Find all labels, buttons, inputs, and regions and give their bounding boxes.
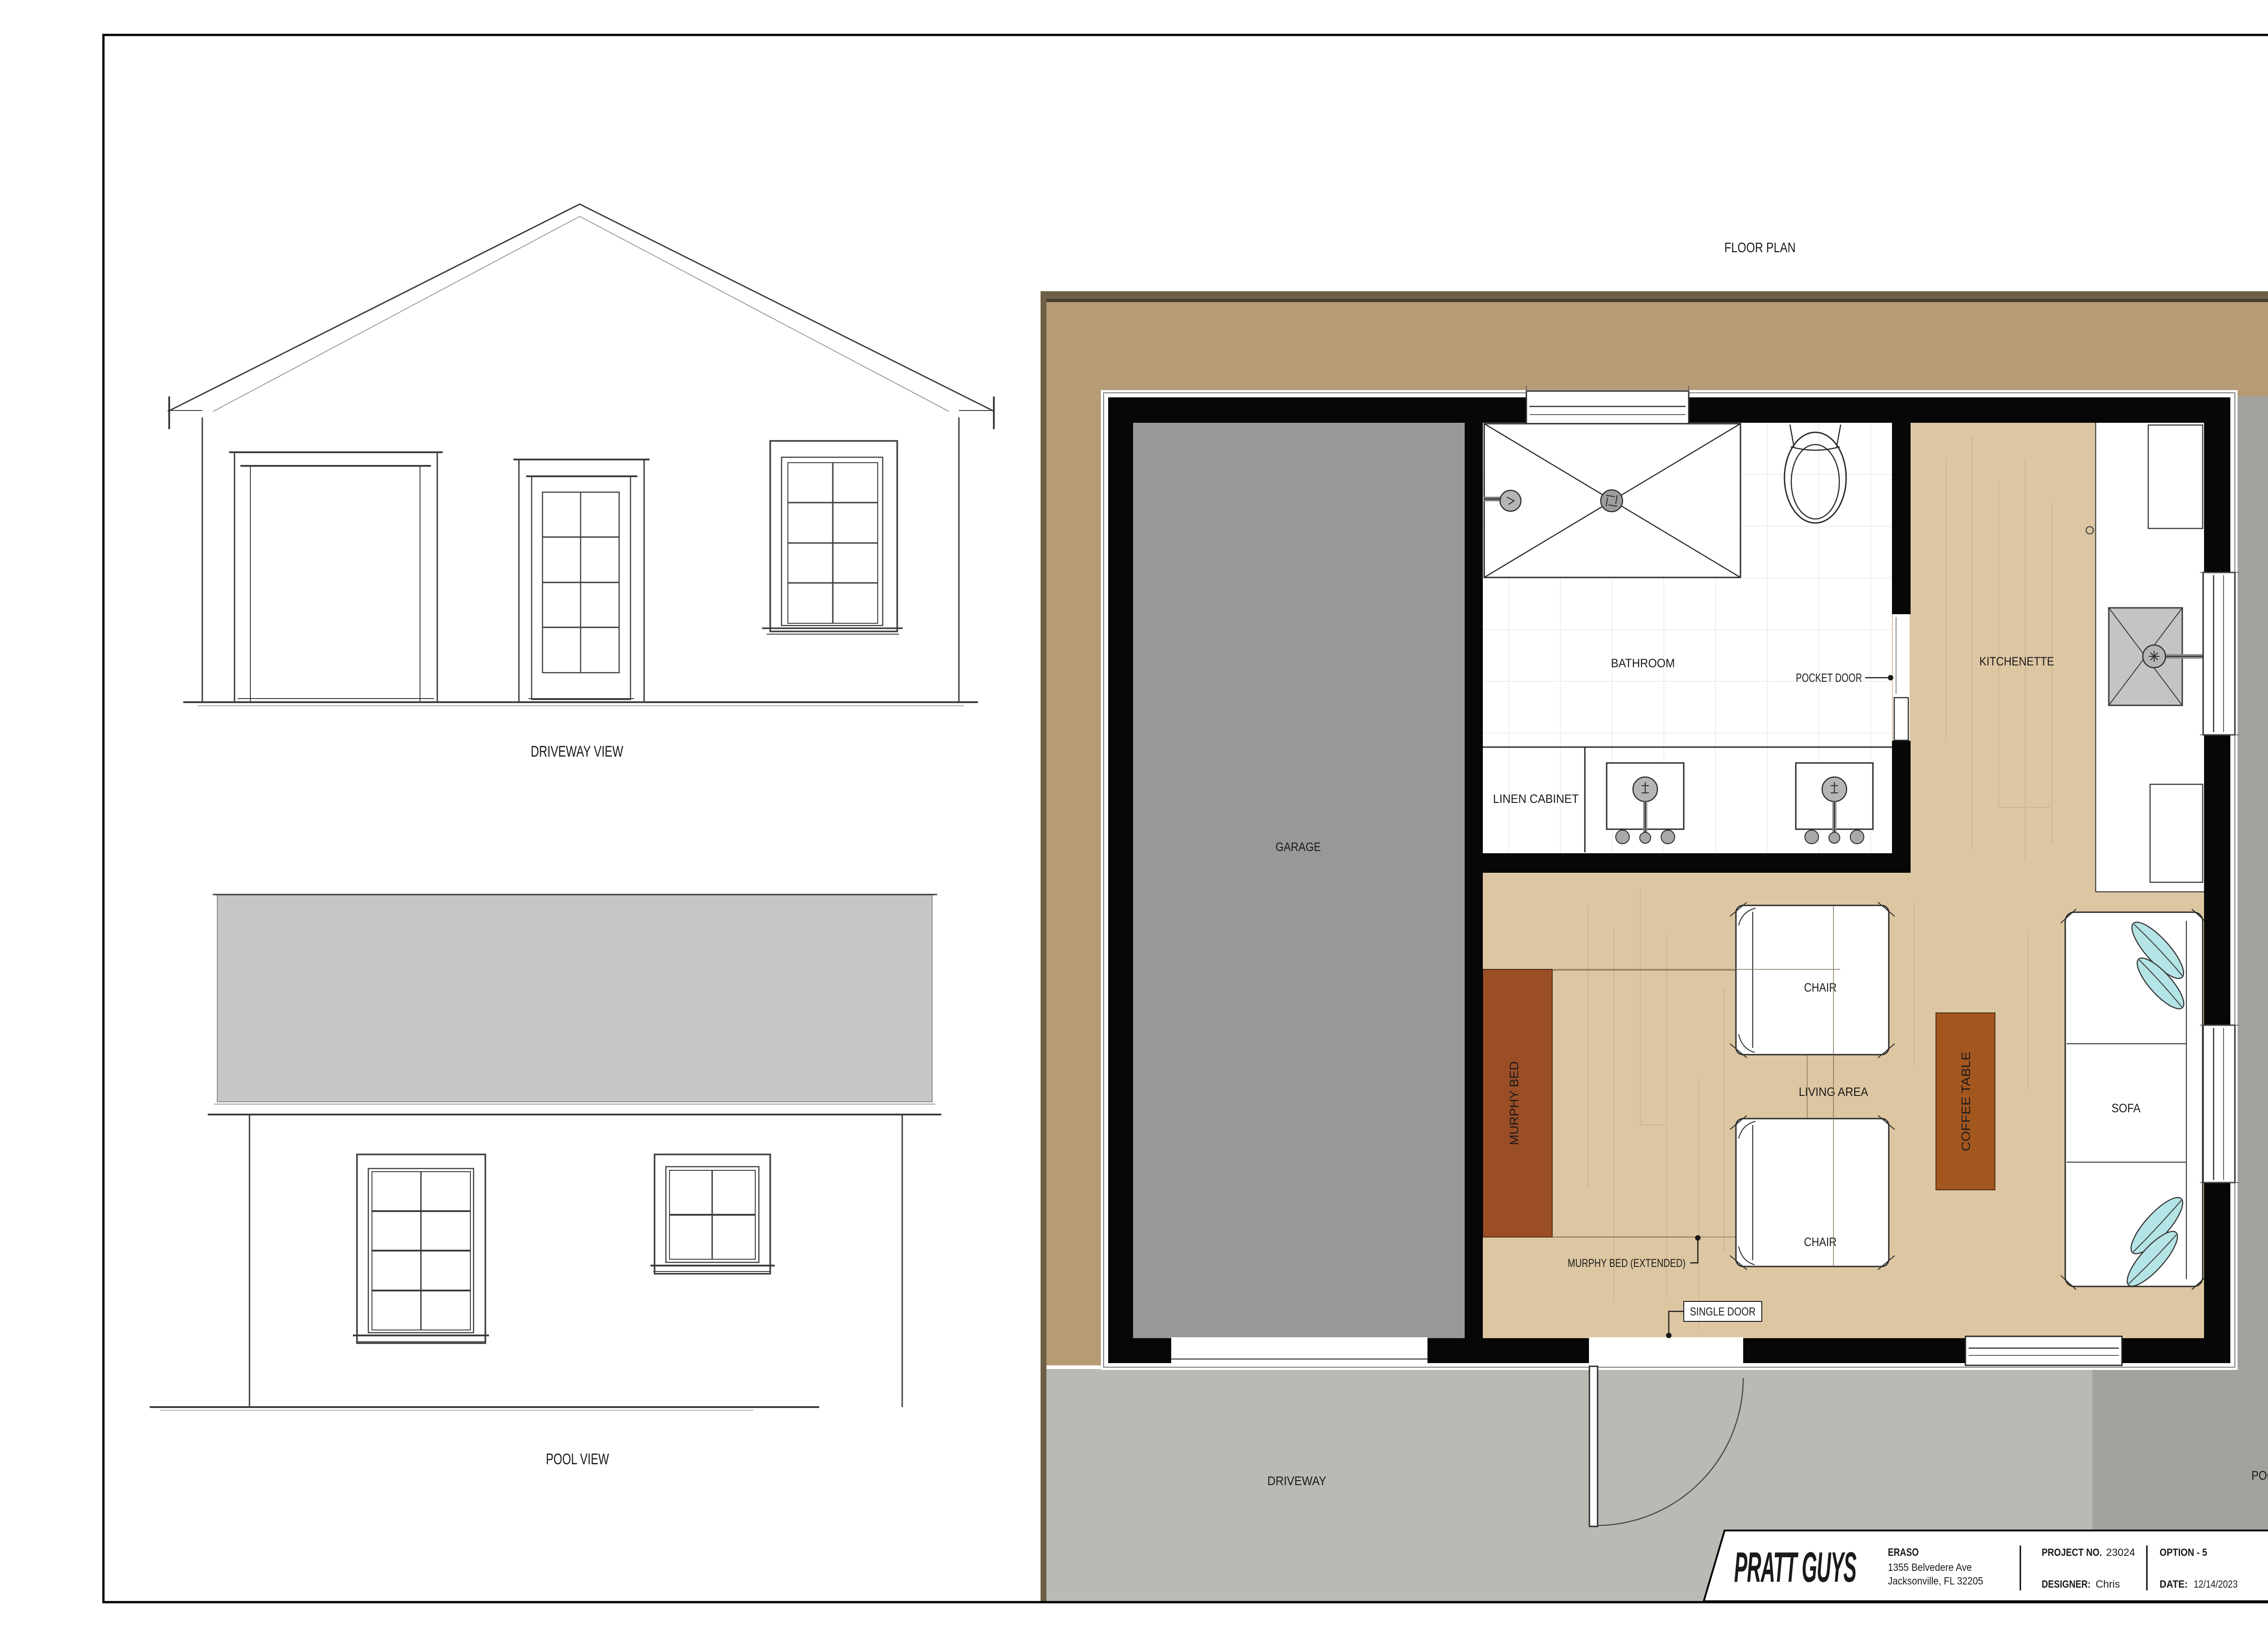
svg-text:SOFA: SOFA — [2112, 1101, 2141, 1115]
svg-text:12/14/2023: 12/14/2023 — [2194, 1578, 2238, 1590]
svg-text:DRIVEWAY VIEW: DRIVEWAY VIEW — [531, 743, 623, 760]
svg-text:1355 Belvedere Ave: 1355 Belvedere Ave — [1888, 1561, 1972, 1573]
svg-text:GARAGE: GARAGE — [1276, 840, 1321, 854]
svg-text:CHAIR: CHAIR — [1804, 981, 1837, 994]
svg-text:BATHROOM: BATHROOM — [1611, 656, 1675, 670]
svg-text:DESIGNER:: DESIGNER: — [2042, 1578, 2091, 1590]
svg-text:OPTION - 5: OPTION - 5 — [2160, 1546, 2207, 1558]
svg-text:KITCHENETTE: KITCHENETTE — [1980, 655, 2054, 668]
svg-text:COFFEE TABLE: COFFEE TABLE — [1959, 1051, 1973, 1151]
svg-text:Chris: Chris — [2096, 1578, 2120, 1590]
svg-text:DATE:: DATE: — [2160, 1578, 2188, 1590]
svg-text:PRATT GUYS: PRATT GUYS — [1734, 1543, 1857, 1591]
svg-text:DRIVEWAY: DRIVEWAY — [1267, 1474, 1326, 1488]
svg-text:POOL VIEW: POOL VIEW — [546, 1451, 609, 1468]
svg-text:POOL DECK: POOL DECK — [2252, 1468, 2268, 1482]
svg-text:MURPHY BED: MURPHY BED — [1507, 1061, 1521, 1145]
svg-text:Jacksonville, FL 32205: Jacksonville, FL 32205 — [1888, 1575, 1983, 1587]
svg-text:SINGLE DOOR: SINGLE DOOR — [1690, 1305, 1756, 1318]
svg-text:MURPHY BED (EXTENDED): MURPHY BED (EXTENDED) — [1568, 1257, 1686, 1270]
svg-text:LINEN CABINET: LINEN CABINET — [1493, 792, 1579, 806]
svg-text:POCKET DOOR: POCKET DOOR — [1796, 671, 1862, 684]
svg-text:ERASO: ERASO — [1888, 1546, 1919, 1559]
svg-text:23024: 23024 — [2106, 1546, 2135, 1558]
svg-text:FLOOR PLAN: FLOOR PLAN — [1725, 240, 1796, 255]
svg-text:PROJECT NO.: PROJECT NO. — [2042, 1546, 2102, 1558]
svg-text:CHAIR: CHAIR — [1804, 1235, 1837, 1249]
